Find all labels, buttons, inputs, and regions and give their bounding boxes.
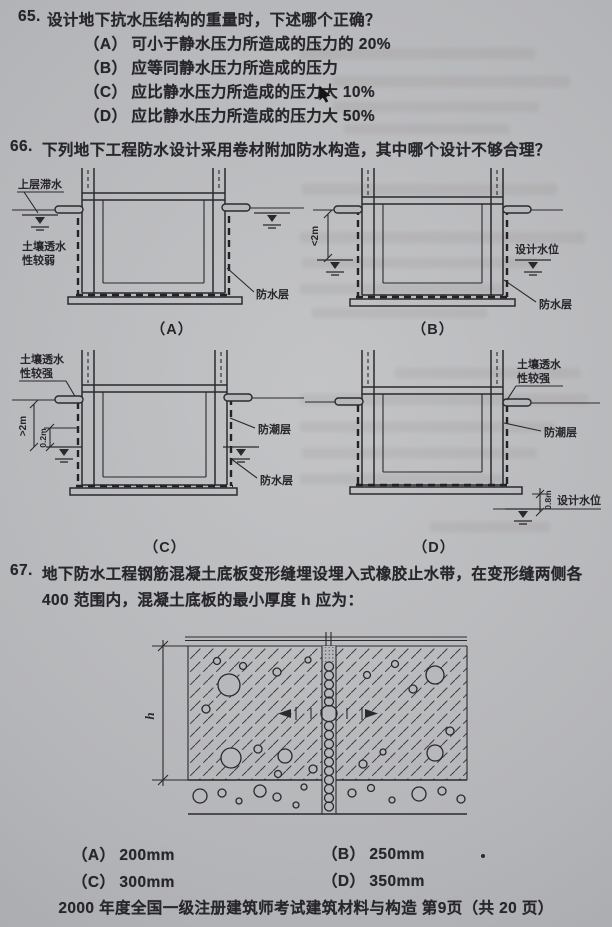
option-text: 应比静水压力所造成的压力大 10% (131, 84, 375, 101)
membrane-termination (503, 206, 531, 213)
caption-c: （C） (144, 538, 186, 556)
thickness-dimension: h (142, 640, 188, 786)
water-table-symbol (22, 215, 58, 230)
option-text: 200mm (119, 847, 174, 864)
label-soil-permeability: 性较强 (20, 366, 53, 380)
footing-plate (70, 488, 237, 495)
option-label: （C） (72, 874, 115, 891)
caption-b: （B） (412, 320, 454, 338)
option-label: （C） (84, 84, 127, 101)
ground-floor-slab (82, 385, 227, 392)
label-soil-permeability: 性较强 (517, 371, 550, 385)
water-table-symbol (254, 213, 290, 228)
option-label: （A） (84, 36, 127, 53)
label-soil-permeability: 土壤透水 (22, 239, 67, 253)
label-design-water-level: 设计水位 (557, 493, 601, 507)
q67-option-d: （D）350mm (322, 869, 425, 891)
waterproof-membrane (76, 398, 233, 486)
label-perched-water: 上层滞水 (18, 177, 63, 191)
water-table-symbol (515, 260, 551, 275)
q65-option-a: （A）可小于静水压力所造成的压力的 20% (84, 32, 391, 54)
q65-number: 65. (18, 8, 41, 26)
membrane-termination (55, 206, 83, 213)
q67-question-line2: 400 范围内，混凝土底板的最小厚度 h 应为： (42, 588, 363, 610)
label-thickness-h: h (142, 712, 157, 719)
q65-question: 设计地下抗水压结构的重量时，下述哪个正确？ (47, 8, 381, 30)
q66-question: 下列地下工程防水设计采用卷材附加防水构造，其中哪个设计不够合理？ (42, 138, 551, 160)
water-table-symbol (223, 447, 259, 462)
label-dampproof-layer: 防潮层 (258, 422, 291, 436)
membrane-termination (222, 204, 250, 211)
footing-plate (68, 297, 242, 304)
ground-floor-slab (362, 197, 503, 204)
diagram-66-d: 土壤透水 性较强 防潮层 0.8m 设计水位 （D） (305, 350, 612, 560)
waterproof-membrane (76, 204, 231, 295)
membrane-termination (55, 396, 83, 403)
option-text: 300mm (119, 874, 174, 891)
membrane-termination (224, 394, 252, 401)
option-text: 350mm (369, 873, 424, 890)
option-text: 可小于静水压力所造成的压力的 20% (131, 36, 391, 53)
option-label: （D） (322, 873, 365, 890)
q67-option-b: （B）250mm (322, 842, 425, 864)
water-table-symbol (46, 447, 82, 462)
scanned-exam-page: 65. 设计地下抗水压结构的重量时，下述哪个正确？ （A）可小于静水压力所造成的… (0, 0, 612, 927)
option-label: （B） (84, 60, 127, 77)
label-waterproof-layer: 防水层 (260, 473, 293, 487)
q67-number: 67. (10, 562, 33, 580)
label-depth-dim: >2m (18, 416, 29, 436)
depth-dimension-line (324, 210, 332, 262)
footing-plate (350, 299, 515, 306)
caption-d: （D） (413, 538, 455, 556)
membrane-termination (335, 398, 363, 405)
mouse-cursor (319, 85, 333, 104)
diagram-66-b: <2m 设计水位 防水层 （B） (305, 168, 612, 346)
option-label: （B） (322, 846, 365, 863)
label-depth-dim: <2m (310, 226, 321, 246)
water-table-symbol (317, 260, 353, 275)
label-soil-permeability: 土壤透水 (517, 357, 562, 371)
diagram-67-waterstop-section: h (130, 628, 530, 828)
label-soil-permeability: 性较弱 (22, 253, 55, 267)
diagram-66-c: 土壤透水 性较强 >2m 0.2m 防潮层 防水层 （C） (12, 350, 304, 560)
water-table-symbol (505, 509, 541, 524)
q67-question-line1: 地下防水工程钢筋混凝土底板变形缝埋设埋入式橡胶止水带，在变形缝两侧各 (42, 562, 583, 584)
option-text: 应等同静水压力所造成的压力 (131, 60, 338, 77)
depth-dimension-line (30, 400, 38, 451)
label-offset-dim: 0.2m (38, 428, 48, 448)
waterproof-membrane (356, 208, 509, 297)
q65-option-b: （B）应等同静水压力所造成的压力 (84, 56, 338, 78)
diagram-66-a: 上层滞水 土壤透水 性较弱 防水层 （A） (12, 168, 304, 346)
label-waterproof-layer: 防水层 (539, 297, 572, 311)
q65-option-d: （D）应比静水压力所造成的压力大 50% (84, 104, 375, 126)
q66-number: 66. (10, 138, 33, 156)
label-depth-dim: 0.8m (543, 490, 553, 510)
dampproof-membrane (356, 405, 509, 485)
option-label: （D） (84, 108, 127, 125)
footing-plate (350, 487, 522, 494)
option-label: （A） (72, 847, 115, 864)
page-footer: 2000 年度全国一级注册建筑师考试建筑材料与构造 第9页（共 20 页） (0, 896, 612, 918)
caption-a: （A） (151, 320, 193, 338)
label-design-water-level: 设计水位 (515, 242, 559, 256)
label-waterproof-layer: 防水层 (256, 287, 289, 301)
joint-sealant (324, 647, 335, 662)
option-text: 应比静水压力所造成的压力大 50% (131, 108, 375, 125)
q67-option-c: （C）300mm (72, 870, 175, 892)
label-soil-permeability: 土壤透水 (20, 352, 65, 366)
label-dampproof-layer: 防潮层 (544, 425, 577, 439)
option-text: 250mm (369, 846, 424, 863)
q67-option-a: （A）200mm (72, 843, 175, 865)
ground-floor-slab (82, 193, 225, 200)
membrane-termination (334, 206, 362, 213)
ink-speck (481, 854, 485, 858)
ground-floor-slab (362, 387, 503, 394)
basement-walls (82, 350, 227, 485)
